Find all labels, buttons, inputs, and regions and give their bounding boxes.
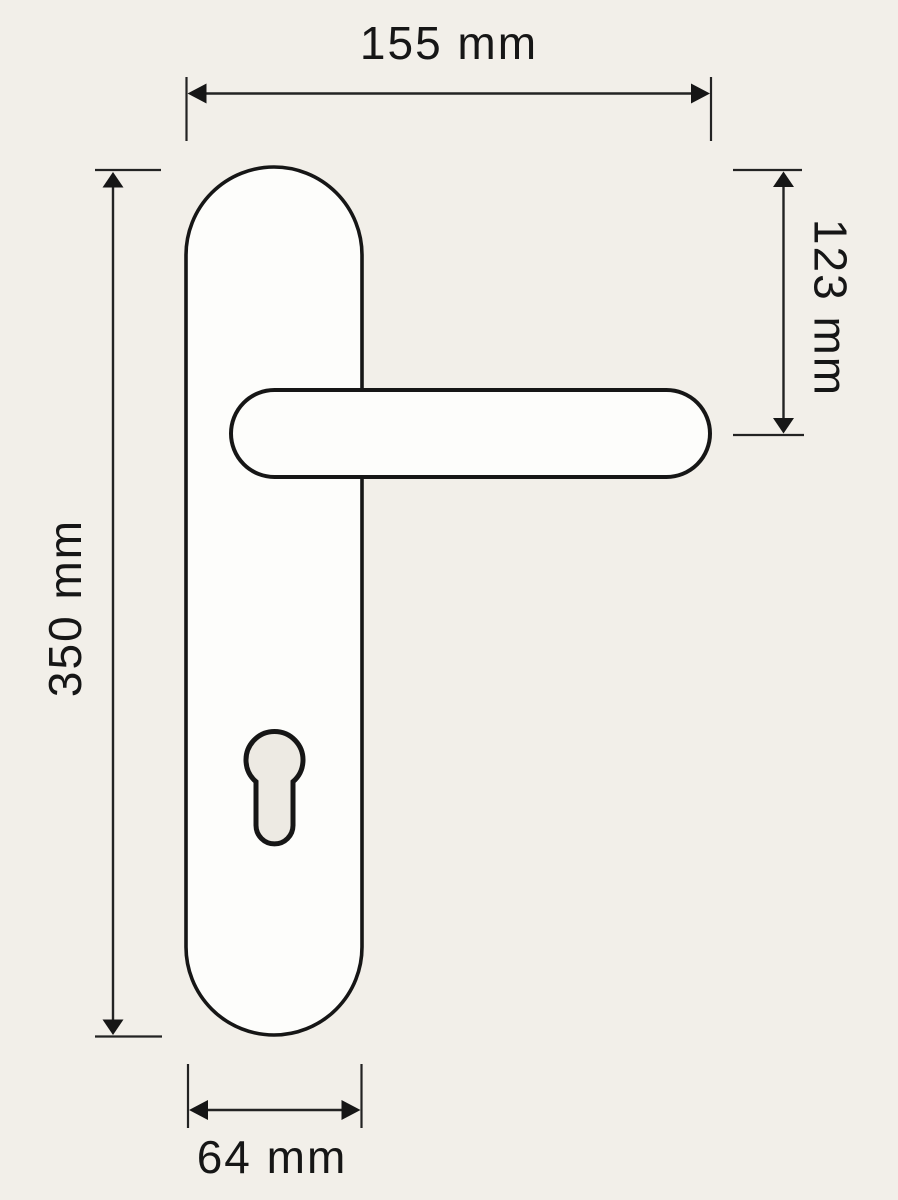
svg-text:350 mm: 350 mm bbox=[39, 519, 91, 697]
svg-text:155 mm: 155 mm bbox=[360, 17, 538, 69]
svg-text:64 mm: 64 mm bbox=[197, 1131, 348, 1183]
svg-text:123 mm: 123 mm bbox=[805, 219, 857, 397]
